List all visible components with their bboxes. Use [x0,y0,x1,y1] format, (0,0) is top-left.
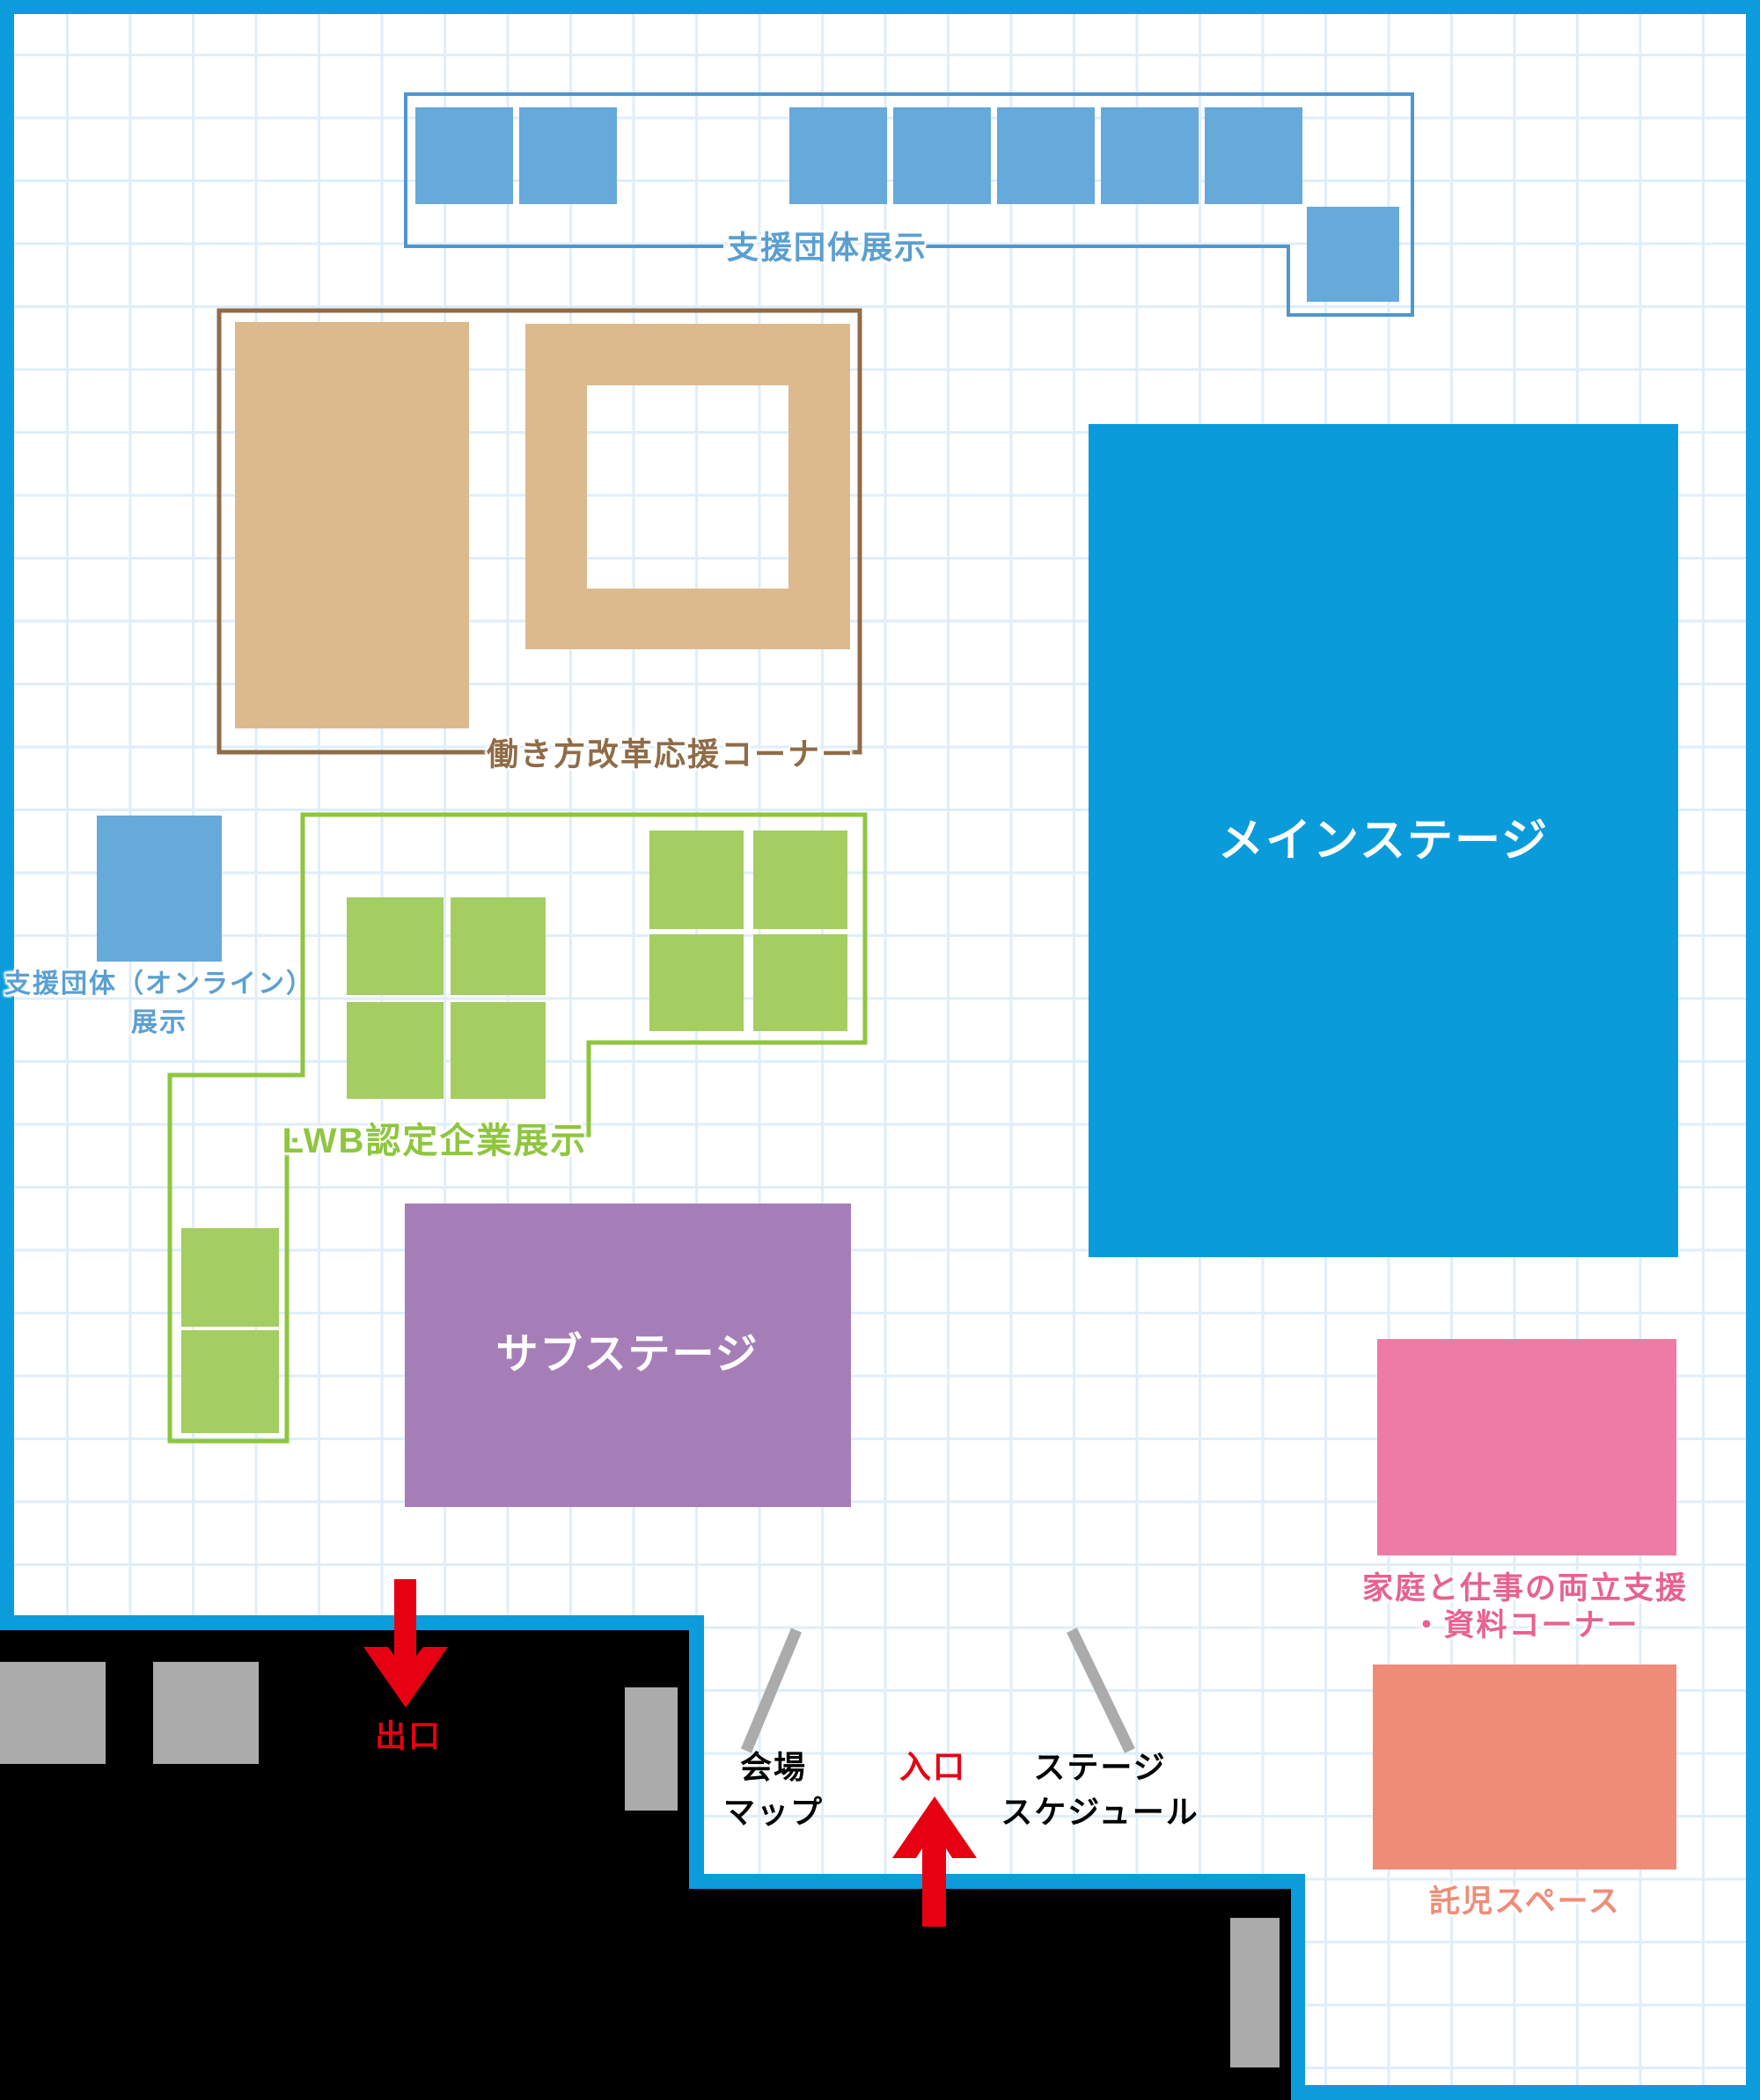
gray-panel [0,1662,106,1764]
lwb-booth [451,1002,546,1099]
workstyle-table-ring [525,324,850,649]
venue-map-shapes [0,0,1760,2100]
lwb-booth [451,897,546,995]
entrance-label: 入口 [899,1747,966,1785]
support-booth [519,107,617,204]
schedule-sign-line2: スケジュール [1001,1789,1199,1834]
venue-map-sign-line1: 会場 [723,1745,824,1789]
venue-map-sign-stand [746,1630,796,1751]
family-support-label-line2: ・資料コーナー [1362,1607,1688,1644]
support-booth [997,107,1095,204]
lwb-booth [181,1228,279,1327]
lwb-booth [181,1330,279,1433]
childcare-label: 託児スペース [1429,1884,1621,1921]
workstyle-table [235,322,469,728]
lwb-booth [649,830,744,929]
childcare-area [1373,1665,1676,1870]
support-booth-corner [1307,207,1399,302]
support-online-label-line2: 展示 [4,1004,314,1043]
schedule-sign-stand [1072,1630,1130,1751]
border-inner-vertical-right [1291,1889,1305,2085]
border-inner-horizontal-entrance [689,1874,1305,1889]
support-online-booth [97,816,222,962]
lwb-label: LWB認定企業展示 [282,1120,588,1162]
exit-label: 出口 [375,1716,442,1754]
support-groups-label: 支援団体展示 [727,228,928,266]
support-booth [893,107,991,204]
gray-panel [625,1687,678,1811]
main-stage-label: メインステージ [1218,814,1549,868]
border-right [1746,0,1760,2100]
venue-map-sign-label: 会場 マップ [723,1745,824,1834]
support-booth [1101,107,1199,204]
family-support-label: 家庭と仕事の両立支援 ・資料コーナー [1362,1570,1688,1644]
support-online-label: 支援団体（オンライン） 展示 [4,965,314,1043]
lwb-booth [347,1002,444,1099]
border-bottom-right [1291,2085,1760,2100]
venue-map-sign-line2: マップ [723,1789,824,1834]
venue-map-canvas: 支援団体展示 働き方改革応援コーナー 支援団体（オンライン） 展示 LWB認定企… [0,0,1760,2100]
support-online-label-line1: 支援団体（オンライン） [4,965,314,1004]
lwb-booth [649,934,744,1031]
workstyle-label: 働き方改革応援コーナー [487,735,854,772]
border-inner-horizontal-exit [0,1615,704,1630]
family-support-label-line1: 家庭と仕事の両立支援 [1362,1570,1688,1607]
support-booth [1205,107,1302,204]
border-inner-vertical-left [689,1630,704,1889]
support-booth [789,107,887,204]
gray-panel [153,1662,259,1764]
schedule-sign-label: ステージ スケジュール [1001,1745,1199,1834]
lwb-booth [753,934,847,1031]
border-top [0,0,1760,14]
support-booth [415,107,513,204]
family-support-area [1377,1339,1676,1555]
lwb-booth [347,897,444,995]
border-left [0,0,14,1630]
lwb-booth [753,830,847,929]
gray-panel [1230,1918,1280,2067]
schedule-sign-line1: ステージ [1001,1745,1199,1789]
sub-stage-label: サブステージ [495,1329,759,1380]
